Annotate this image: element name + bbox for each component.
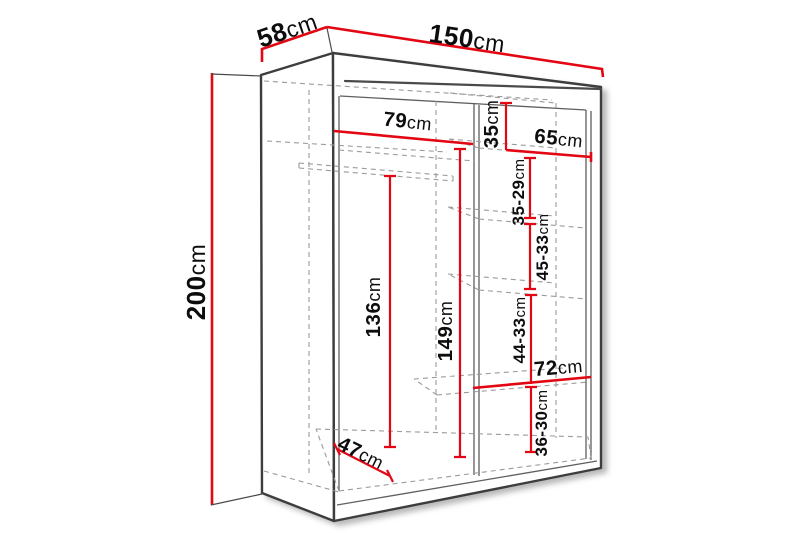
label-35: 35cm [480,100,503,149]
side-panel [261,53,334,521]
label-44-33: 44-33cm [510,297,529,364]
label-depth-58: 58cm [253,5,321,53]
label-36-30: 36-30cm [532,390,551,457]
label-35-29: 35-29cm [509,159,528,226]
dim-ext-height-top [211,74,262,76]
label-149: 149cm [434,301,457,362]
diagram-canvas: 58cm 150cm 200cm 79cm 35cm 65cm 35-29cm … [0,0,800,533]
label-136: 136cm [362,277,385,338]
corner-tick [327,28,332,52]
label-height-200: 200cm [181,244,211,321]
label-width-150: 150cm [427,18,507,58]
label-45-33: 45-33cm [533,214,552,281]
dim-ext-height-bottom [211,494,262,505]
wardrobe-dimension-diagram: 58cm 150cm 200cm 79cm 35cm 65cm 35-29cm … [0,0,800,533]
